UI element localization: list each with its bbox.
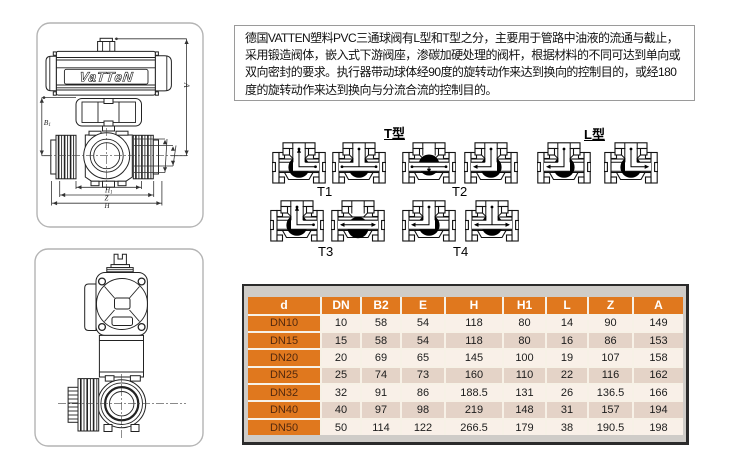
svg-text:VaTTeN: VaTTeN [79,70,135,85]
svg-text:A: A [182,82,191,88]
svg-text:H: H [104,202,111,210]
